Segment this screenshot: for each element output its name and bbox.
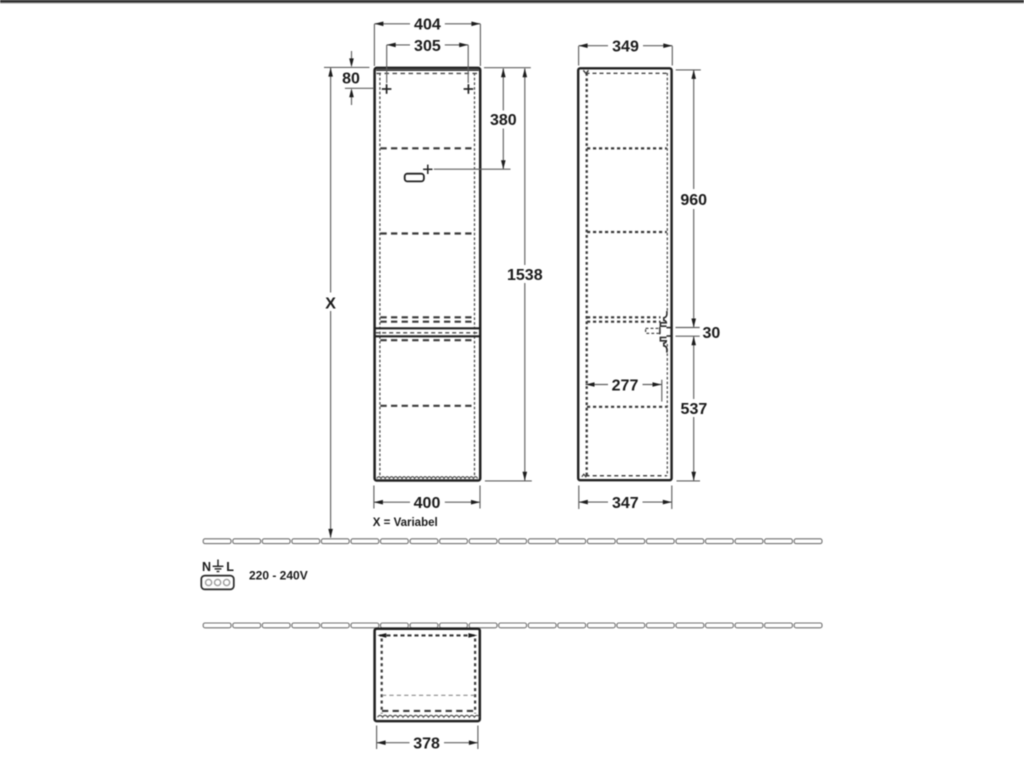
svg-text:X: X (325, 296, 336, 313)
svg-text:220 - 240V: 220 - 240V (249, 569, 308, 583)
svg-text:277: 277 (612, 377, 639, 394)
svg-text:380: 380 (490, 112, 517, 129)
svg-text:N: N (202, 560, 211, 574)
svg-text:80: 80 (342, 71, 360, 88)
svg-text:404: 404 (414, 17, 441, 34)
svg-text:30: 30 (703, 325, 721, 342)
svg-text:378: 378 (413, 736, 440, 753)
svg-text:537: 537 (681, 401, 708, 418)
svg-text:X = Variabel: X = Variabel (373, 517, 438, 529)
svg-text:349: 349 (612, 39, 639, 56)
svg-text:960: 960 (680, 192, 707, 209)
svg-text:305: 305 (414, 38, 441, 55)
svg-text:1538: 1538 (507, 267, 543, 284)
svg-text:400: 400 (414, 495, 441, 512)
svg-text:347: 347 (612, 495, 639, 512)
svg-text:L: L (226, 560, 234, 574)
